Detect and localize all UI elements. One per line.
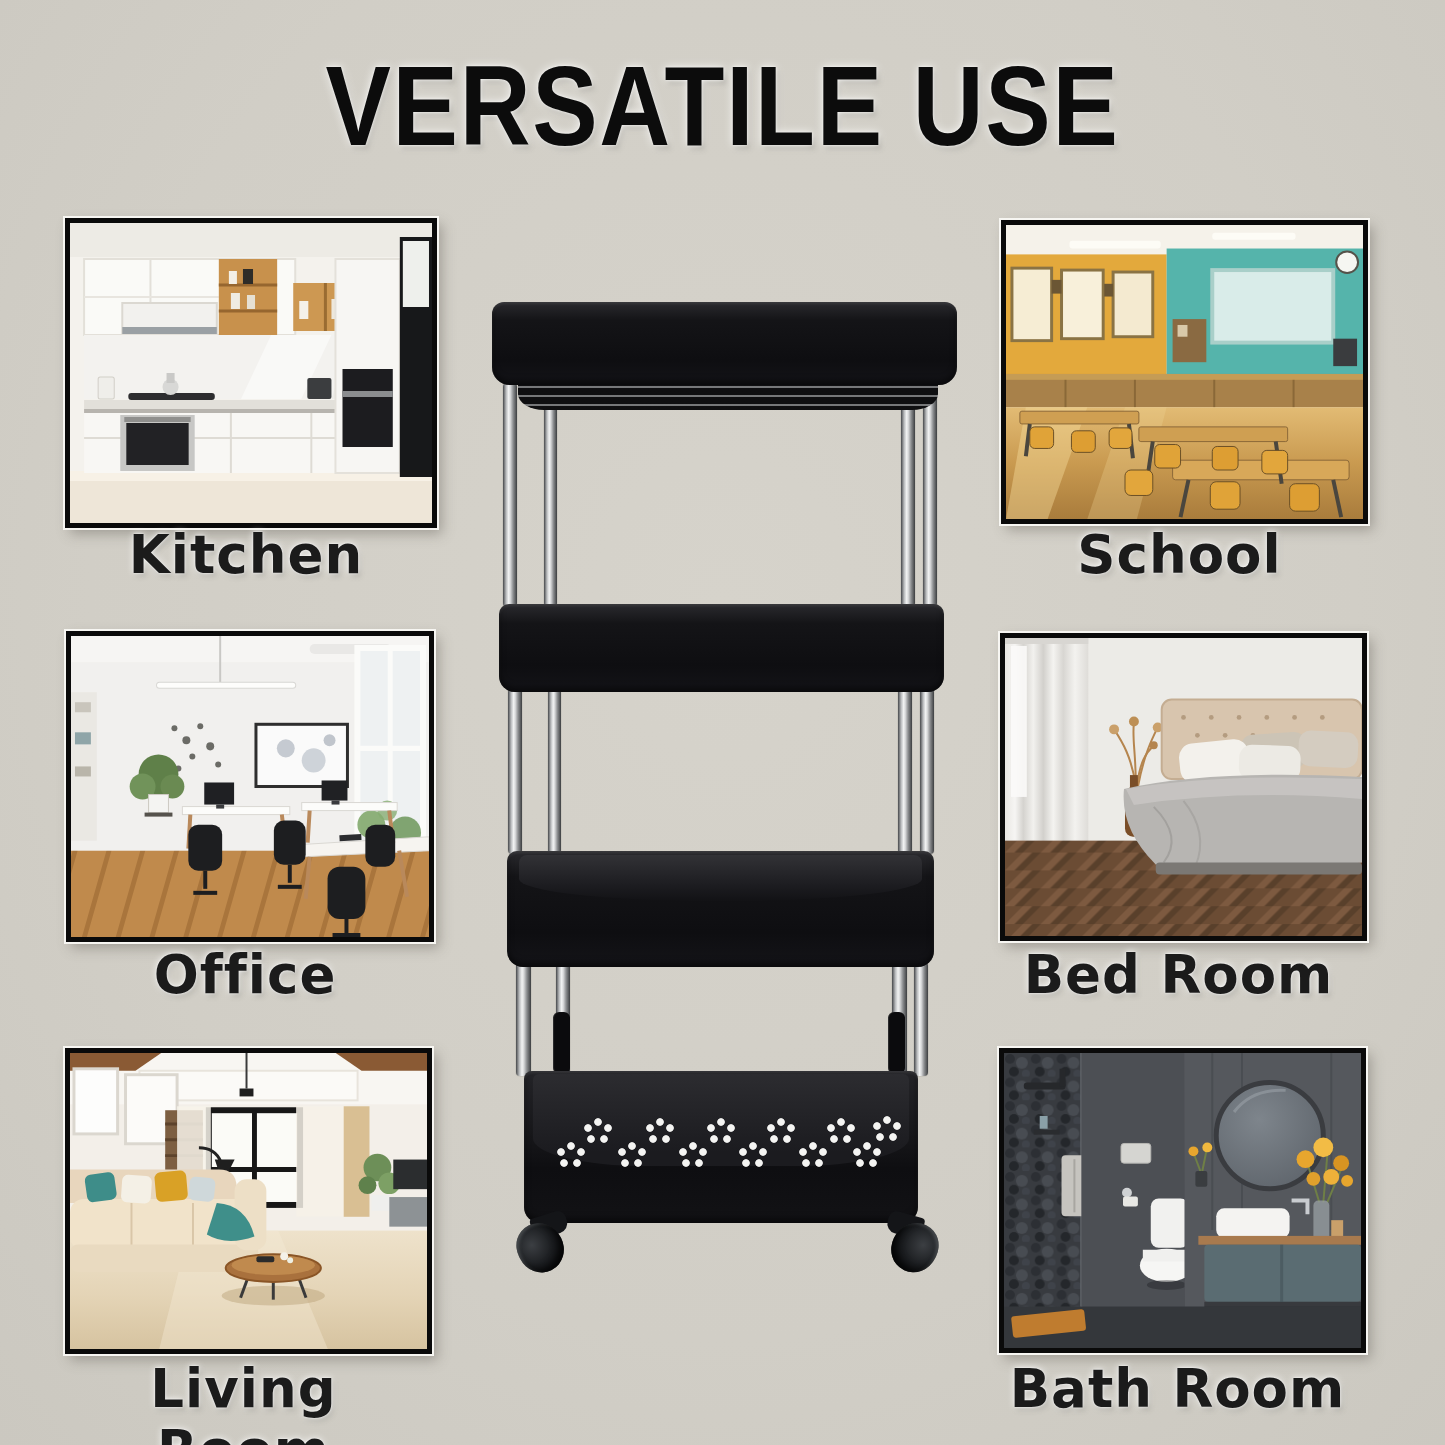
bedroom-bed [1124, 775, 1362, 875]
cart-pole [503, 383, 517, 607]
kitchen-photo [70, 223, 432, 523]
living-room-photo [70, 1053, 427, 1349]
bathroom-mirror [1216, 1083, 1323, 1189]
perforation-flower [556, 1142, 586, 1169]
kitchen-window [400, 237, 432, 477]
right-caster-wheel [874, 1212, 940, 1276]
perforation-flower [766, 1118, 796, 1145]
perforation-flower [872, 1116, 902, 1143]
perforation-flower [852, 1142, 882, 1169]
cart-pole-sleeve [553, 1012, 570, 1074]
cart-tier-2 [499, 604, 944, 692]
cart-pole [544, 383, 557, 607]
left-caster-wheel [515, 1211, 582, 1276]
bathroom-floor [1004, 1307, 1361, 1348]
cart-pole-sleeve [888, 1012, 905, 1074]
bedroom-label: Bed Room [1000, 944, 1357, 1005]
kitchen-card [65, 218, 437, 528]
perforation-flower [706, 1118, 736, 1145]
living-room-ceiling [70, 1053, 427, 1104]
cart-wire-shelf [518, 383, 938, 410]
page-title: VERSATILE USE [101, 40, 1344, 171]
cart-tier-3 [507, 851, 934, 967]
perforation-flower [617, 1142, 647, 1169]
bathroom-card [999, 1048, 1366, 1353]
office-card [66, 631, 434, 942]
poster-canvas: VERSATILE USE [0, 0, 1445, 1445]
school-card [1001, 220, 1368, 524]
office-photo [71, 636, 429, 937]
office-label: Office [66, 944, 424, 1005]
living-room-card [65, 1048, 432, 1354]
perforation-flower [826, 1118, 856, 1145]
bedroom-card [1000, 633, 1367, 941]
kitchen-range-hood [122, 303, 217, 334]
cart-pole [508, 688, 522, 854]
school-left-wall [1006, 254, 1167, 379]
school-label: School [1001, 524, 1358, 585]
office-whiteboard-map [256, 724, 347, 786]
school-counter [1006, 374, 1363, 407]
school-photo [1006, 225, 1363, 519]
cart-pole [920, 688, 934, 854]
office-shelf [71, 692, 97, 840]
perforation-flower [678, 1142, 708, 1169]
cart-tier-1 [492, 302, 957, 385]
school-right-wall [1167, 249, 1363, 380]
kitchen-label: Kitchen [65, 524, 427, 585]
cart-pole [901, 383, 915, 607]
cart-pole [923, 383, 937, 607]
perforation-flower [583, 1118, 613, 1145]
kitchen-tall-oven-unit [335, 259, 399, 473]
cart-pole [914, 962, 928, 1076]
bedroom-photo [1005, 638, 1362, 936]
living-room-wall-art [74, 1069, 177, 1144]
perforation-flower [645, 1118, 675, 1145]
living-room-label: Living Room [65, 1358, 422, 1445]
bathroom-label: Bath Room [999, 1358, 1356, 1419]
perforation-flower [738, 1142, 768, 1169]
perforation-flower [798, 1142, 828, 1169]
cart-pole [516, 962, 531, 1076]
cart-pole [898, 688, 912, 854]
cart-pole [548, 688, 561, 854]
bathroom-photo [1004, 1053, 1361, 1348]
bedroom-curtains [1005, 638, 1088, 845]
